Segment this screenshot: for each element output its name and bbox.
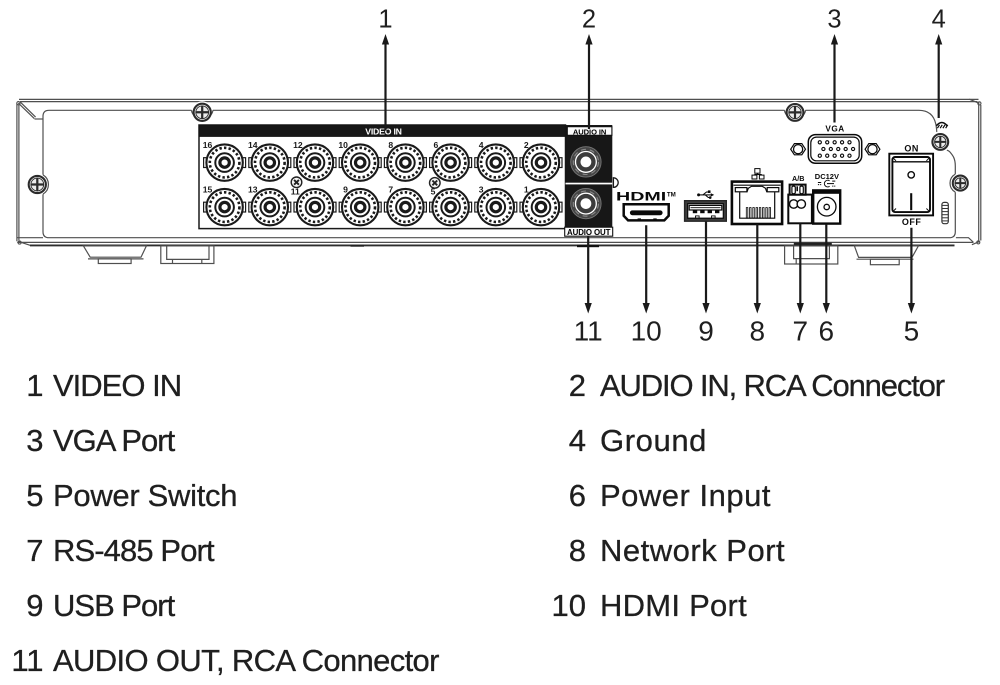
svg-text:5: 5: [904, 316, 920, 347]
svg-text:VIDEO IN: VIDEO IN: [365, 127, 402, 137]
svg-text:Power Input: Power Input: [600, 478, 771, 513]
svg-text:3: 3: [479, 185, 484, 195]
svg-text:OFF: OFF: [902, 217, 922, 227]
svg-text:6: 6: [819, 316, 835, 347]
svg-text:9: 9: [343, 185, 348, 195]
svg-text:1: 1: [378, 6, 392, 34]
svg-text:A/B: A/B: [792, 174, 804, 183]
svg-text:12: 12: [293, 140, 303, 150]
svg-text:11: 11: [574, 316, 603, 347]
svg-text:Power Switch: Power Switch: [53, 478, 237, 513]
svg-text:VGA Port: VGA Port: [53, 423, 176, 458]
svg-text:7: 7: [388, 185, 393, 195]
svg-text:1: 1: [26, 368, 43, 403]
svg-text:HDMI Port: HDMI Port: [600, 588, 747, 623]
svg-text:4: 4: [932, 6, 946, 34]
svg-text:10: 10: [552, 588, 586, 623]
svg-text:9: 9: [698, 316, 714, 347]
svg-text:15: 15: [203, 185, 213, 195]
svg-text:7: 7: [26, 533, 43, 568]
svg-text:8: 8: [750, 316, 766, 347]
svg-text:AUDIO IN, RCA Connector: AUDIO IN, RCA Connector: [600, 368, 945, 403]
svg-text:7: 7: [793, 316, 809, 347]
svg-text:USB Port: USB Port: [53, 588, 176, 623]
svg-text:AUDIO OUT: AUDIO OUT: [567, 228, 611, 237]
svg-text:9: 9: [26, 588, 43, 623]
svg-text:3: 3: [827, 6, 841, 34]
svg-text:6: 6: [434, 140, 439, 150]
svg-text:Network Port: Network Port: [600, 533, 785, 568]
svg-text:TM: TM: [667, 191, 676, 198]
svg-text:8: 8: [388, 140, 393, 150]
svg-text:5: 5: [26, 478, 43, 513]
svg-text:11: 11: [11, 643, 43, 678]
svg-text:10: 10: [631, 316, 662, 347]
svg-text:ON: ON: [904, 144, 919, 154]
svg-text:1: 1: [524, 185, 529, 195]
svg-text:HDMI: HDMI: [616, 191, 666, 204]
svg-text:VGA: VGA: [825, 125, 844, 134]
svg-text:8: 8: [569, 533, 586, 568]
svg-text:4: 4: [479, 140, 484, 150]
svg-text:13: 13: [248, 185, 258, 195]
svg-text:2: 2: [569, 368, 586, 403]
svg-text:14: 14: [248, 140, 258, 150]
svg-text:3: 3: [26, 423, 43, 458]
svg-text:16: 16: [203, 140, 213, 150]
svg-text:6: 6: [569, 478, 586, 513]
svg-text:AUDIO OUT, RCA Connector: AUDIO OUT, RCA Connector: [53, 643, 439, 678]
svg-text:2: 2: [582, 6, 596, 34]
svg-text:Ground: Ground: [600, 423, 707, 458]
svg-text:RS-485 Port: RS-485 Port: [53, 533, 215, 568]
svg-text:10: 10: [338, 140, 348, 150]
svg-text:2: 2: [524, 140, 529, 150]
svg-text:4: 4: [569, 423, 586, 458]
svg-text:VIDEO IN: VIDEO IN: [53, 368, 181, 403]
